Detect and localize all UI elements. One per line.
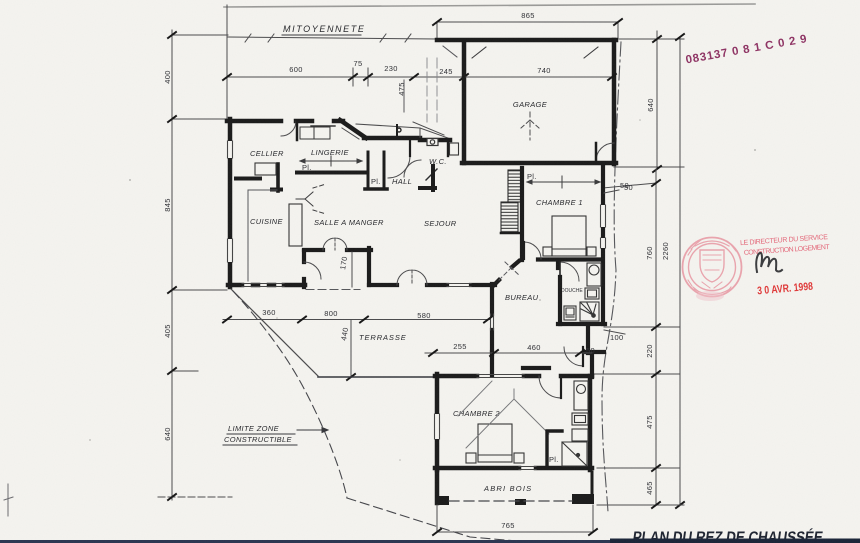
svg-text:100: 100 [610, 333, 623, 342]
svg-text:460: 460 [527, 343, 540, 352]
svg-text:75: 75 [354, 59, 363, 68]
svg-text:170: 170 [338, 256, 349, 271]
svg-text:580: 580 [417, 311, 430, 320]
svg-text:Pl.: Pl. [371, 177, 381, 186]
svg-text:CUISINE: CUISINE [250, 217, 284, 226]
svg-text:400: 400 [163, 70, 172, 83]
svg-text:DOUCHE: DOUCHE [561, 288, 583, 294]
svg-text:ABRI BOIS: ABRI BOIS [483, 484, 532, 493]
svg-text:CELLIER: CELLIER [250, 149, 284, 158]
svg-text:GARAGE: GARAGE [513, 100, 548, 109]
svg-text:845: 845 [163, 198, 172, 211]
svg-text:760: 760 [645, 246, 654, 259]
svg-text:640: 640 [646, 98, 655, 111]
svg-text:475: 475 [397, 82, 406, 95]
svg-text:360: 360 [262, 308, 275, 317]
svg-text:50: 50 [586, 346, 595, 355]
svg-text:50: 50 [620, 181, 629, 190]
svg-text:245: 245 [439, 67, 452, 76]
svg-text:TERRASSE: TERRASSE [359, 333, 407, 342]
svg-text:800: 800 [324, 309, 337, 318]
svg-text:740: 740 [537, 66, 550, 75]
svg-text:SALLE A MANGER: SALLE A MANGER [314, 218, 384, 227]
svg-text:CONSTRUCTIBLE: CONSTRUCTIBLE [224, 435, 293, 444]
svg-text:475: 475 [645, 415, 654, 428]
svg-text:3 0 AVR. 1998: 3 0 AVR. 1998 [757, 281, 814, 298]
svg-text:640: 640 [163, 427, 172, 440]
svg-text:600: 600 [289, 65, 302, 74]
svg-text:865: 865 [521, 11, 534, 20]
svg-text:LIMITE ZONE: LIMITE ZONE [228, 424, 280, 433]
svg-text:230: 230 [384, 64, 397, 73]
svg-text:Pl.: Pl. [302, 163, 312, 172]
svg-text:BUREAU: BUREAU [505, 293, 539, 302]
svg-text:SEJOUR: SEJOUR [424, 219, 457, 228]
svg-text:220: 220 [645, 344, 654, 357]
svg-text:465: 465 [645, 481, 654, 494]
svg-text:440: 440 [339, 327, 350, 342]
svg-text:2260: 2260 [661, 242, 670, 260]
svg-text:MITOYENNETE: MITOYENNETE [283, 24, 365, 34]
svg-text:255: 255 [453, 342, 466, 351]
svg-text:405: 405 [163, 324, 172, 337]
svg-text:CHAMBRE 1: CHAMBRE 1 [536, 198, 583, 207]
svg-text:HALL: HALL [392, 177, 412, 186]
svg-text:Pl.: Pl. [549, 455, 559, 464]
svg-text:765: 765 [501, 521, 514, 530]
svg-text:083137 0 8 1 C 0 2 9: 083137 0 8 1 C 0 2 9 [685, 33, 809, 66]
svg-text:LINGERIE: LINGERIE [311, 148, 349, 157]
